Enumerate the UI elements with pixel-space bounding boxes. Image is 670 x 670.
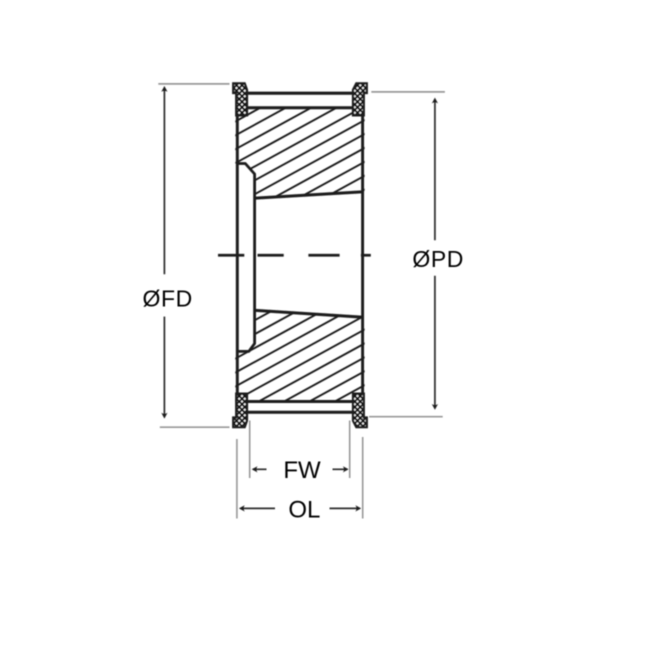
svg-text:ØFD: ØFD: [143, 286, 193, 312]
svg-text:ØPD: ØPD: [412, 246, 464, 272]
svg-text:OL: OL: [288, 496, 320, 523]
svg-text:FW: FW: [283, 457, 321, 484]
